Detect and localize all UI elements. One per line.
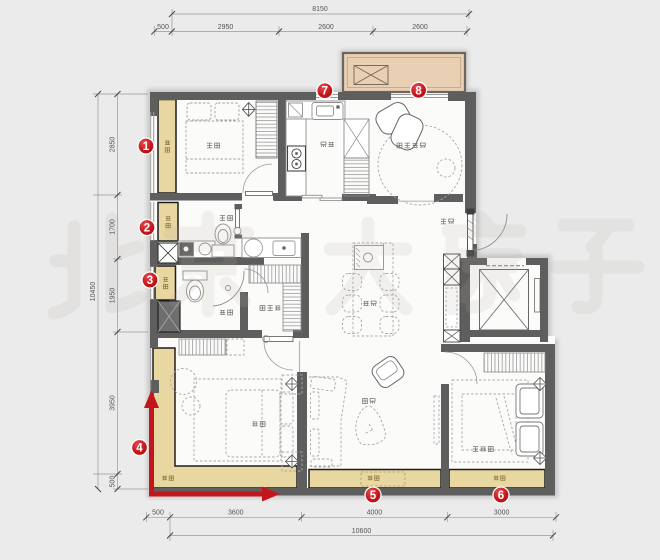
svg-text:8150: 8150 xyxy=(312,6,328,13)
svg-text:2600: 2600 xyxy=(318,24,334,31)
svg-text:4: 4 xyxy=(136,443,143,455)
svg-text:3: 3 xyxy=(147,275,153,287)
svg-text:2600: 2600 xyxy=(412,24,428,31)
svg-text:2850: 2850 xyxy=(110,137,117,153)
svg-text:3600: 3600 xyxy=(228,510,244,517)
svg-text:1700: 1700 xyxy=(110,219,117,235)
svg-text:500: 500 xyxy=(152,510,164,517)
svg-text:1: 1 xyxy=(143,141,150,153)
svg-text:4000: 4000 xyxy=(367,510,383,517)
svg-text:500: 500 xyxy=(157,24,169,31)
svg-text:8: 8 xyxy=(415,85,422,97)
svg-text:7: 7 xyxy=(322,86,328,98)
svg-text:10600: 10600 xyxy=(352,528,372,535)
svg-text:1950: 1950 xyxy=(110,288,117,304)
svg-text:6: 6 xyxy=(498,490,504,502)
svg-text:2950: 2950 xyxy=(218,24,234,31)
svg-text:10450: 10450 xyxy=(90,282,97,302)
svg-text:3000: 3000 xyxy=(494,510,510,517)
svg-text:5: 5 xyxy=(370,490,377,502)
svg-text:500: 500 xyxy=(110,476,117,488)
svg-text:2: 2 xyxy=(144,223,150,235)
svg-text:3950: 3950 xyxy=(110,395,117,411)
